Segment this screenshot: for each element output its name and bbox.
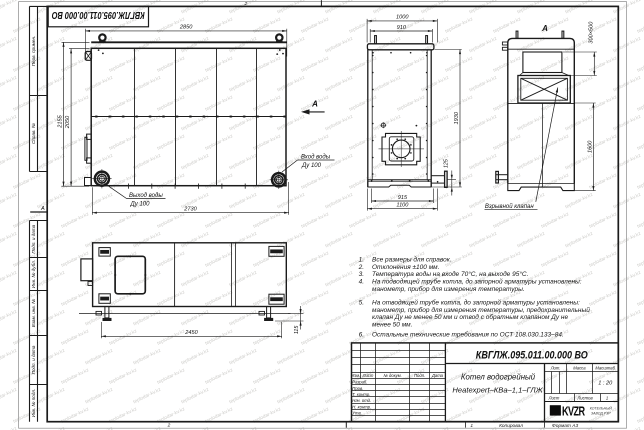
svg-text:Н. контр.: Н. контр. — [352, 404, 371, 409]
svg-text:На отводящей трубе котла, до з: На отводящей трубе котла, до запорной ар… — [372, 299, 580, 307]
svg-text:2050: 2050 — [65, 115, 71, 129]
svg-text:менее 50 мм.: менее 50 мм. — [372, 321, 413, 328]
svg-text:Пров.: Пров. — [352, 386, 363, 391]
svg-text:Все размеры для справок.: Все размеры для справок. — [372, 256, 452, 264]
svg-text:1930: 1930 — [454, 111, 460, 124]
svg-text:Взам. инв. №: Взам. инв. № — [31, 299, 36, 327]
svg-text:Дата: Дата — [431, 373, 444, 378]
svg-text:1 : 20: 1 : 20 — [598, 381, 613, 387]
svg-text:1: 1 — [606, 396, 608, 401]
svg-text:Инв. № подл.: Инв. № подл. — [31, 389, 36, 418]
svg-text:Ду 100: Ду 100 — [130, 202, 151, 208]
svg-text:На подводящей трубе котла, до: На подводящей трубе котла, до запорной а… — [372, 278, 582, 286]
svg-text:Лит.: Лит. — [550, 366, 561, 371]
svg-text:Листов: Листов — [576, 396, 593, 401]
svg-text:6.: 6. — [359, 332, 365, 339]
svg-text:Лист: Лист — [362, 373, 374, 378]
svg-text:Формат А3: Формат А3 — [552, 423, 579, 429]
svg-text:1600: 1600 — [587, 140, 593, 153]
svg-text:Справ. №: Справ. № — [31, 123, 36, 144]
svg-text:КВГЛЖ.095.011.00.000 ВО: КВГЛЖ.095.011.00.000 ВО — [476, 349, 588, 361]
svg-text:4.: 4. — [359, 279, 365, 286]
svg-text:Масса: Масса — [573, 366, 586, 371]
svg-text:Копировал: Копировал — [499, 423, 523, 429]
svg-text:125: 125 — [444, 159, 450, 168]
svg-text:манометр, прибор для измерения: манометр, прибор для измерения температу… — [372, 285, 525, 293]
svg-text:КВГЛЖ.095.011.00.000 ВО: КВГЛЖ.095.011.00.000 ВО — [52, 9, 145, 20]
svg-text:Разраб.: Разраб. — [352, 380, 367, 385]
svg-text:5.: 5. — [359, 300, 365, 307]
svg-text:Подп.: Подп. — [414, 373, 425, 378]
svg-text:Heatexpert–КВа–1,1–ГЛЖ: Heatexpert–КВа–1,1–ГЛЖ — [452, 385, 543, 394]
svg-text:Температура воды на входе 70°С: Температура воды на входе 70°С, на выход… — [372, 270, 529, 278]
svg-text:KVZR: KVZR — [562, 404, 585, 418]
svg-text:Лист: Лист — [548, 396, 560, 401]
svg-text:Изм.: Изм. — [351, 373, 360, 378]
svg-text:Инв. № дубл.: Инв. № дубл. — [31, 260, 36, 288]
svg-text:915: 915 — [398, 195, 408, 201]
svg-text:2730: 2730 — [183, 207, 197, 213]
svg-text:Выход воды: Выход воды — [129, 193, 163, 199]
svg-text:Вход воды: Вход воды — [301, 155, 331, 161]
svg-text:2.: 2. — [358, 264, 365, 271]
svg-text:1100: 1100 — [396, 203, 409, 209]
svg-text:2850: 2850 — [179, 25, 193, 31]
svg-text:КОТЕЛЬНЫЙ: КОТЕЛЬНЫЙ — [590, 407, 613, 411]
svg-text:Ду 100: Ду 100 — [301, 163, 322, 169]
svg-text:Остальные технические требован: Остальные технические требования по ОСТ … — [372, 331, 564, 339]
svg-text:Отклонения ±100 мм.: Отклонения ±100 мм. — [372, 264, 440, 271]
svg-text:2: 2 — [167, 423, 171, 429]
svg-text:2: 2 — [243, 1, 247, 7]
svg-text:Нач. отд.: Нач. отд. — [352, 398, 371, 403]
svg-text:910: 910 — [397, 25, 407, 31]
svg-text:ЗАВОД РЗР: ЗАВОД РЗР — [591, 411, 611, 415]
svg-text:Перв. примен.: Перв. примен. — [31, 36, 36, 67]
svg-text:1: 1 — [470, 423, 473, 429]
svg-text:115: 115 — [294, 326, 300, 334]
svg-text:клапан Ду не менее 50 мм и отв: клапан Ду не менее 50 мм и отвод с обрат… — [372, 313, 569, 321]
svg-text:Подп. и дата: Подп. и дата — [31, 345, 36, 374]
svg-text:Взрывной клапан: Взрывной клапан — [485, 203, 534, 210]
svg-text:3.: 3. — [359, 271, 365, 278]
svg-text:Котел водогрейный: Котел водогрейный — [461, 373, 536, 382]
svg-text:2450: 2450 — [184, 330, 198, 336]
svg-text:манометр, прибор для измерения: манометр, прибор для измерения температу… — [372, 306, 590, 314]
svg-text:А: А — [541, 24, 548, 33]
svg-text:А: А — [40, 206, 45, 212]
svg-text:1.: 1. — [359, 257, 365, 264]
svg-text:№ докум.: № докум. — [383, 373, 401, 378]
svg-text:Подп. и дата: Подп. и дата — [31, 224, 36, 253]
svg-text:Т. контр.: Т. контр. — [352, 392, 370, 397]
svg-text:А: А — [311, 100, 318, 109]
svg-text:Утв.: Утв. — [352, 411, 362, 416]
svg-text:1000: 1000 — [396, 15, 409, 21]
svg-text:2155: 2155 — [58, 114, 64, 128]
svg-text:Масштаб: Масштаб — [595, 366, 615, 371]
svg-text:300×500: 300×500 — [588, 21, 594, 44]
